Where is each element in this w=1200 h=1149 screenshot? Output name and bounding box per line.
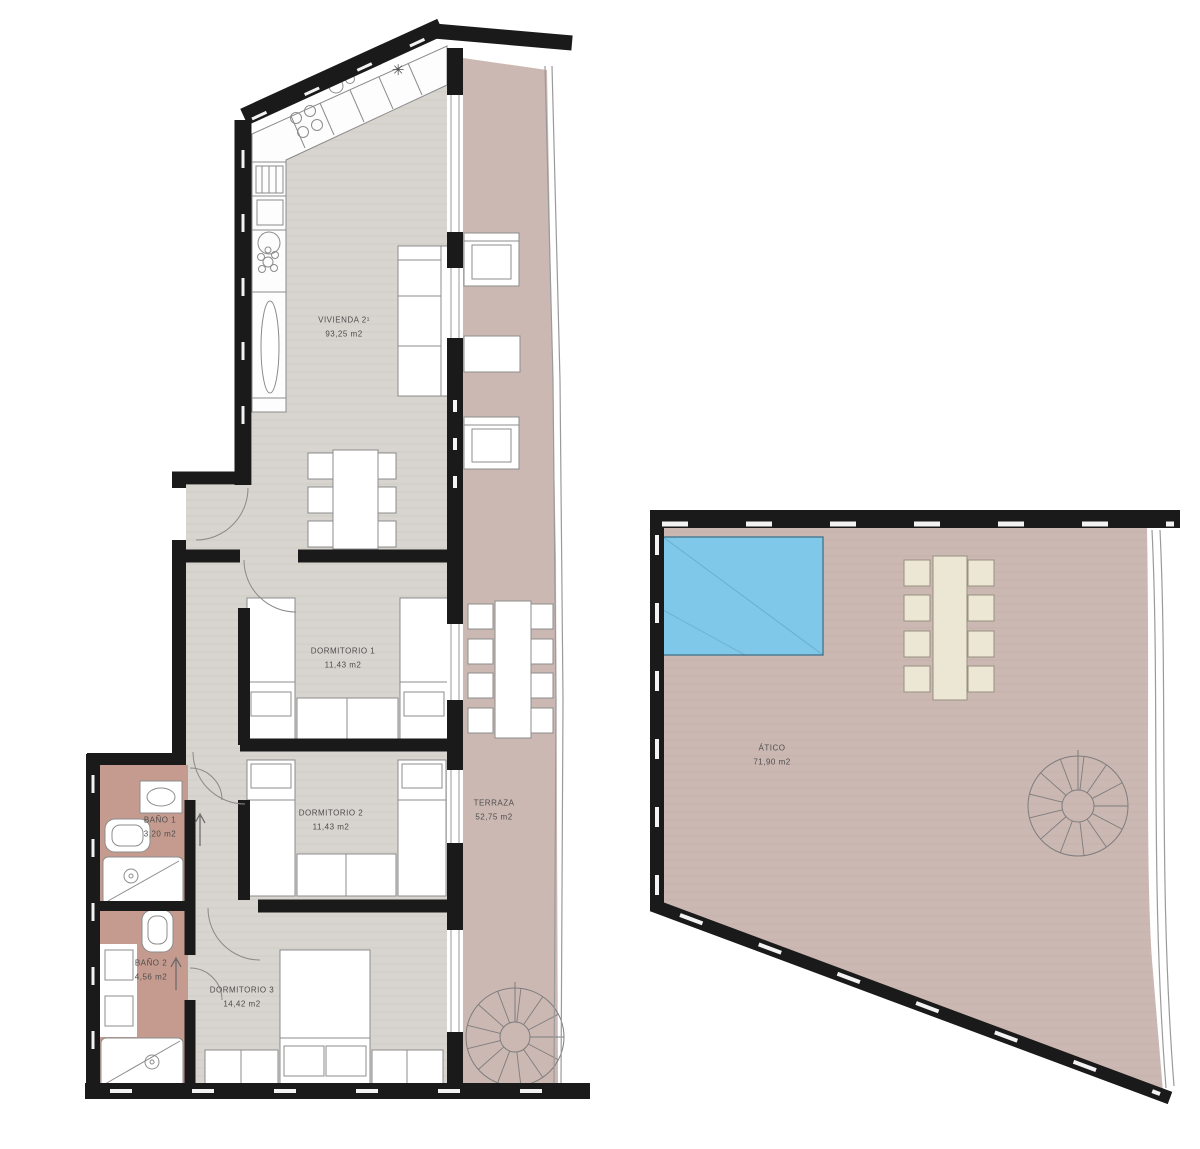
room-label-bano2: BAÑO 2 4,56 m2: [135, 956, 167, 983]
room-name: ÁTICO: [753, 741, 790, 755]
atico-plan: [650, 512, 1180, 1098]
window: [447, 624, 463, 700]
basin-icon: [105, 950, 133, 980]
terraza-floor: [463, 58, 558, 1083]
floorplan-svg: ✳: [0, 0, 1200, 1149]
room-name: VIVIENDA 2¹: [318, 313, 370, 327]
room-label-terraza: TERRAZA 52,75 m2: [474, 796, 515, 823]
room-label-bano1: BAÑO 1 3,20 m2: [144, 813, 176, 840]
pool: [663, 537, 823, 655]
tall-cabinet-icon: [261, 301, 279, 393]
sofa: [398, 246, 455, 396]
room-name: BAÑO 2: [135, 956, 167, 970]
room-area: 71,90 m2: [753, 755, 790, 769]
room-name: DORMITORIO 1: [311, 644, 376, 658]
room-area: 3,20 m2: [144, 827, 176, 841]
room-label-atico: ÁTICO 71,90 m2: [753, 741, 790, 768]
room-label-dormitorio2: DORMITORIO 2 11,43 m2: [299, 806, 364, 833]
window: [447, 770, 463, 843]
window: [447, 930, 463, 1032]
room-area: 93,25 m2: [318, 327, 370, 341]
room-label-dormitorio1: DORMITORIO 1 11,43 m2: [311, 644, 376, 671]
star-icon: ✳: [392, 61, 405, 79]
room-name: TERRAZA: [474, 796, 515, 810]
room-area: 11,43 m2: [299, 820, 364, 834]
dining-table-set: [308, 450, 396, 549]
room-area: 4,56 m2: [135, 970, 167, 984]
room-label-vivienda: VIVIENDA 2¹ 93,25 m2: [318, 313, 370, 340]
basin-icon: [105, 996, 133, 1026]
window: [447, 95, 463, 232]
room-name: DORMITORIO 2: [299, 806, 364, 820]
room-area: 14,42 m2: [210, 997, 275, 1011]
main-plan: ✳: [85, 27, 590, 1091]
room-name: BAÑO 1: [144, 813, 176, 827]
room-name: DORMITORIO 3: [210, 983, 275, 997]
shower-icon: [101, 1038, 183, 1088]
room-area: 11,43 m2: [311, 658, 376, 672]
shower-icon: [103, 857, 183, 905]
floor-plan-page: ✳: [0, 0, 1200, 1149]
room-label-dormitorio3: DORMITORIO 3 14,42 m2: [210, 983, 275, 1010]
room-area: 52,75 m2: [474, 810, 515, 824]
window: [447, 268, 463, 338]
